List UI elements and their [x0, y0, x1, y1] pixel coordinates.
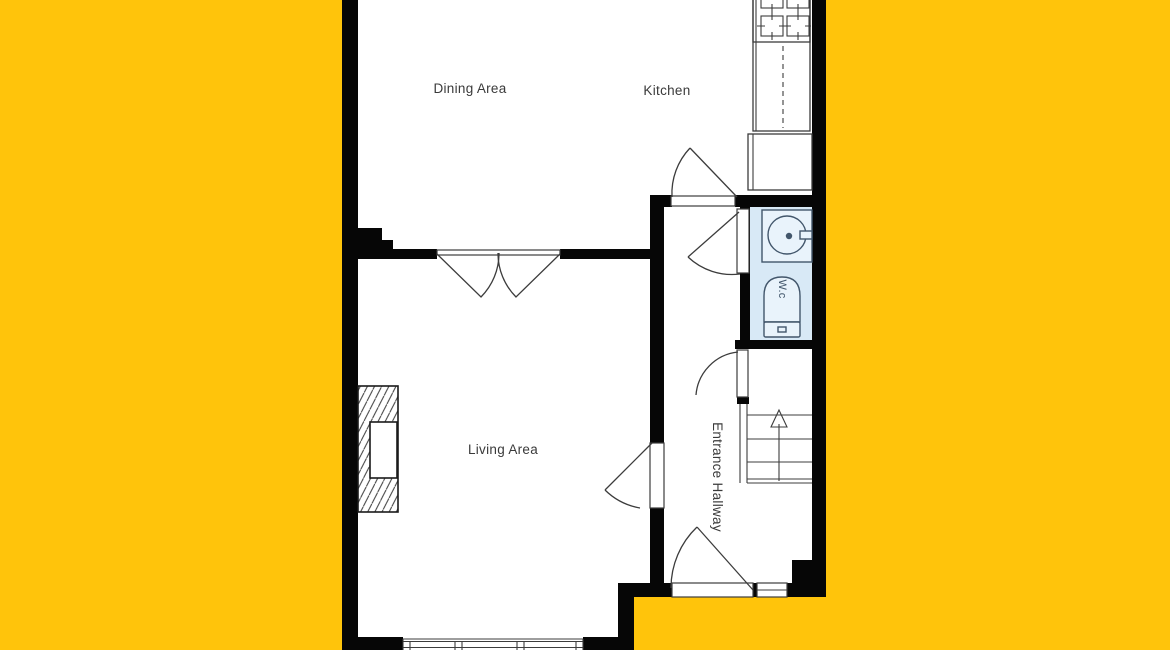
living-floor-lower — [358, 583, 618, 637]
stairs-door-cap — [737, 397, 749, 404]
kitchen-label: Kitchen — [643, 83, 690, 98]
wc-sink — [762, 210, 812, 262]
kitchen-door-jamb-right — [735, 195, 750, 207]
wc-label: W.c — [776, 280, 788, 299]
left-wall — [342, 0, 358, 650]
dining-area-label: Dining Area — [433, 81, 506, 96]
fireplace — [358, 386, 398, 512]
wall-pier — [358, 228, 382, 249]
hall-left-wall-upper — [650, 195, 664, 443]
sink-drain — [786, 233, 792, 239]
kitchen-door-jamb-left — [650, 195, 672, 207]
wc-top-wall — [750, 195, 812, 207]
divider-wall-left — [358, 249, 437, 259]
entrance-hallway-label: Entrance Hallway — [710, 422, 725, 532]
living-floor — [358, 249, 650, 583]
floor-plan-svg: Dining Area Kitchen Living Area Entrance… — [0, 0, 1170, 650]
right-wall — [812, 0, 826, 597]
floor-plan-canvas: Dining Area Kitchen Living Area Entrance… — [0, 0, 1170, 650]
wc-bottom-wall — [735, 340, 812, 349]
wall-pier-step — [382, 240, 393, 249]
sidelight-window — [757, 583, 787, 597]
divider-wall-right — [560, 249, 664, 259]
living-area-label: Living Area — [468, 442, 538, 457]
fireplace-opening — [370, 422, 397, 478]
bay-window — [403, 637, 583, 650]
hall-left-wall-lower — [650, 508, 664, 583]
